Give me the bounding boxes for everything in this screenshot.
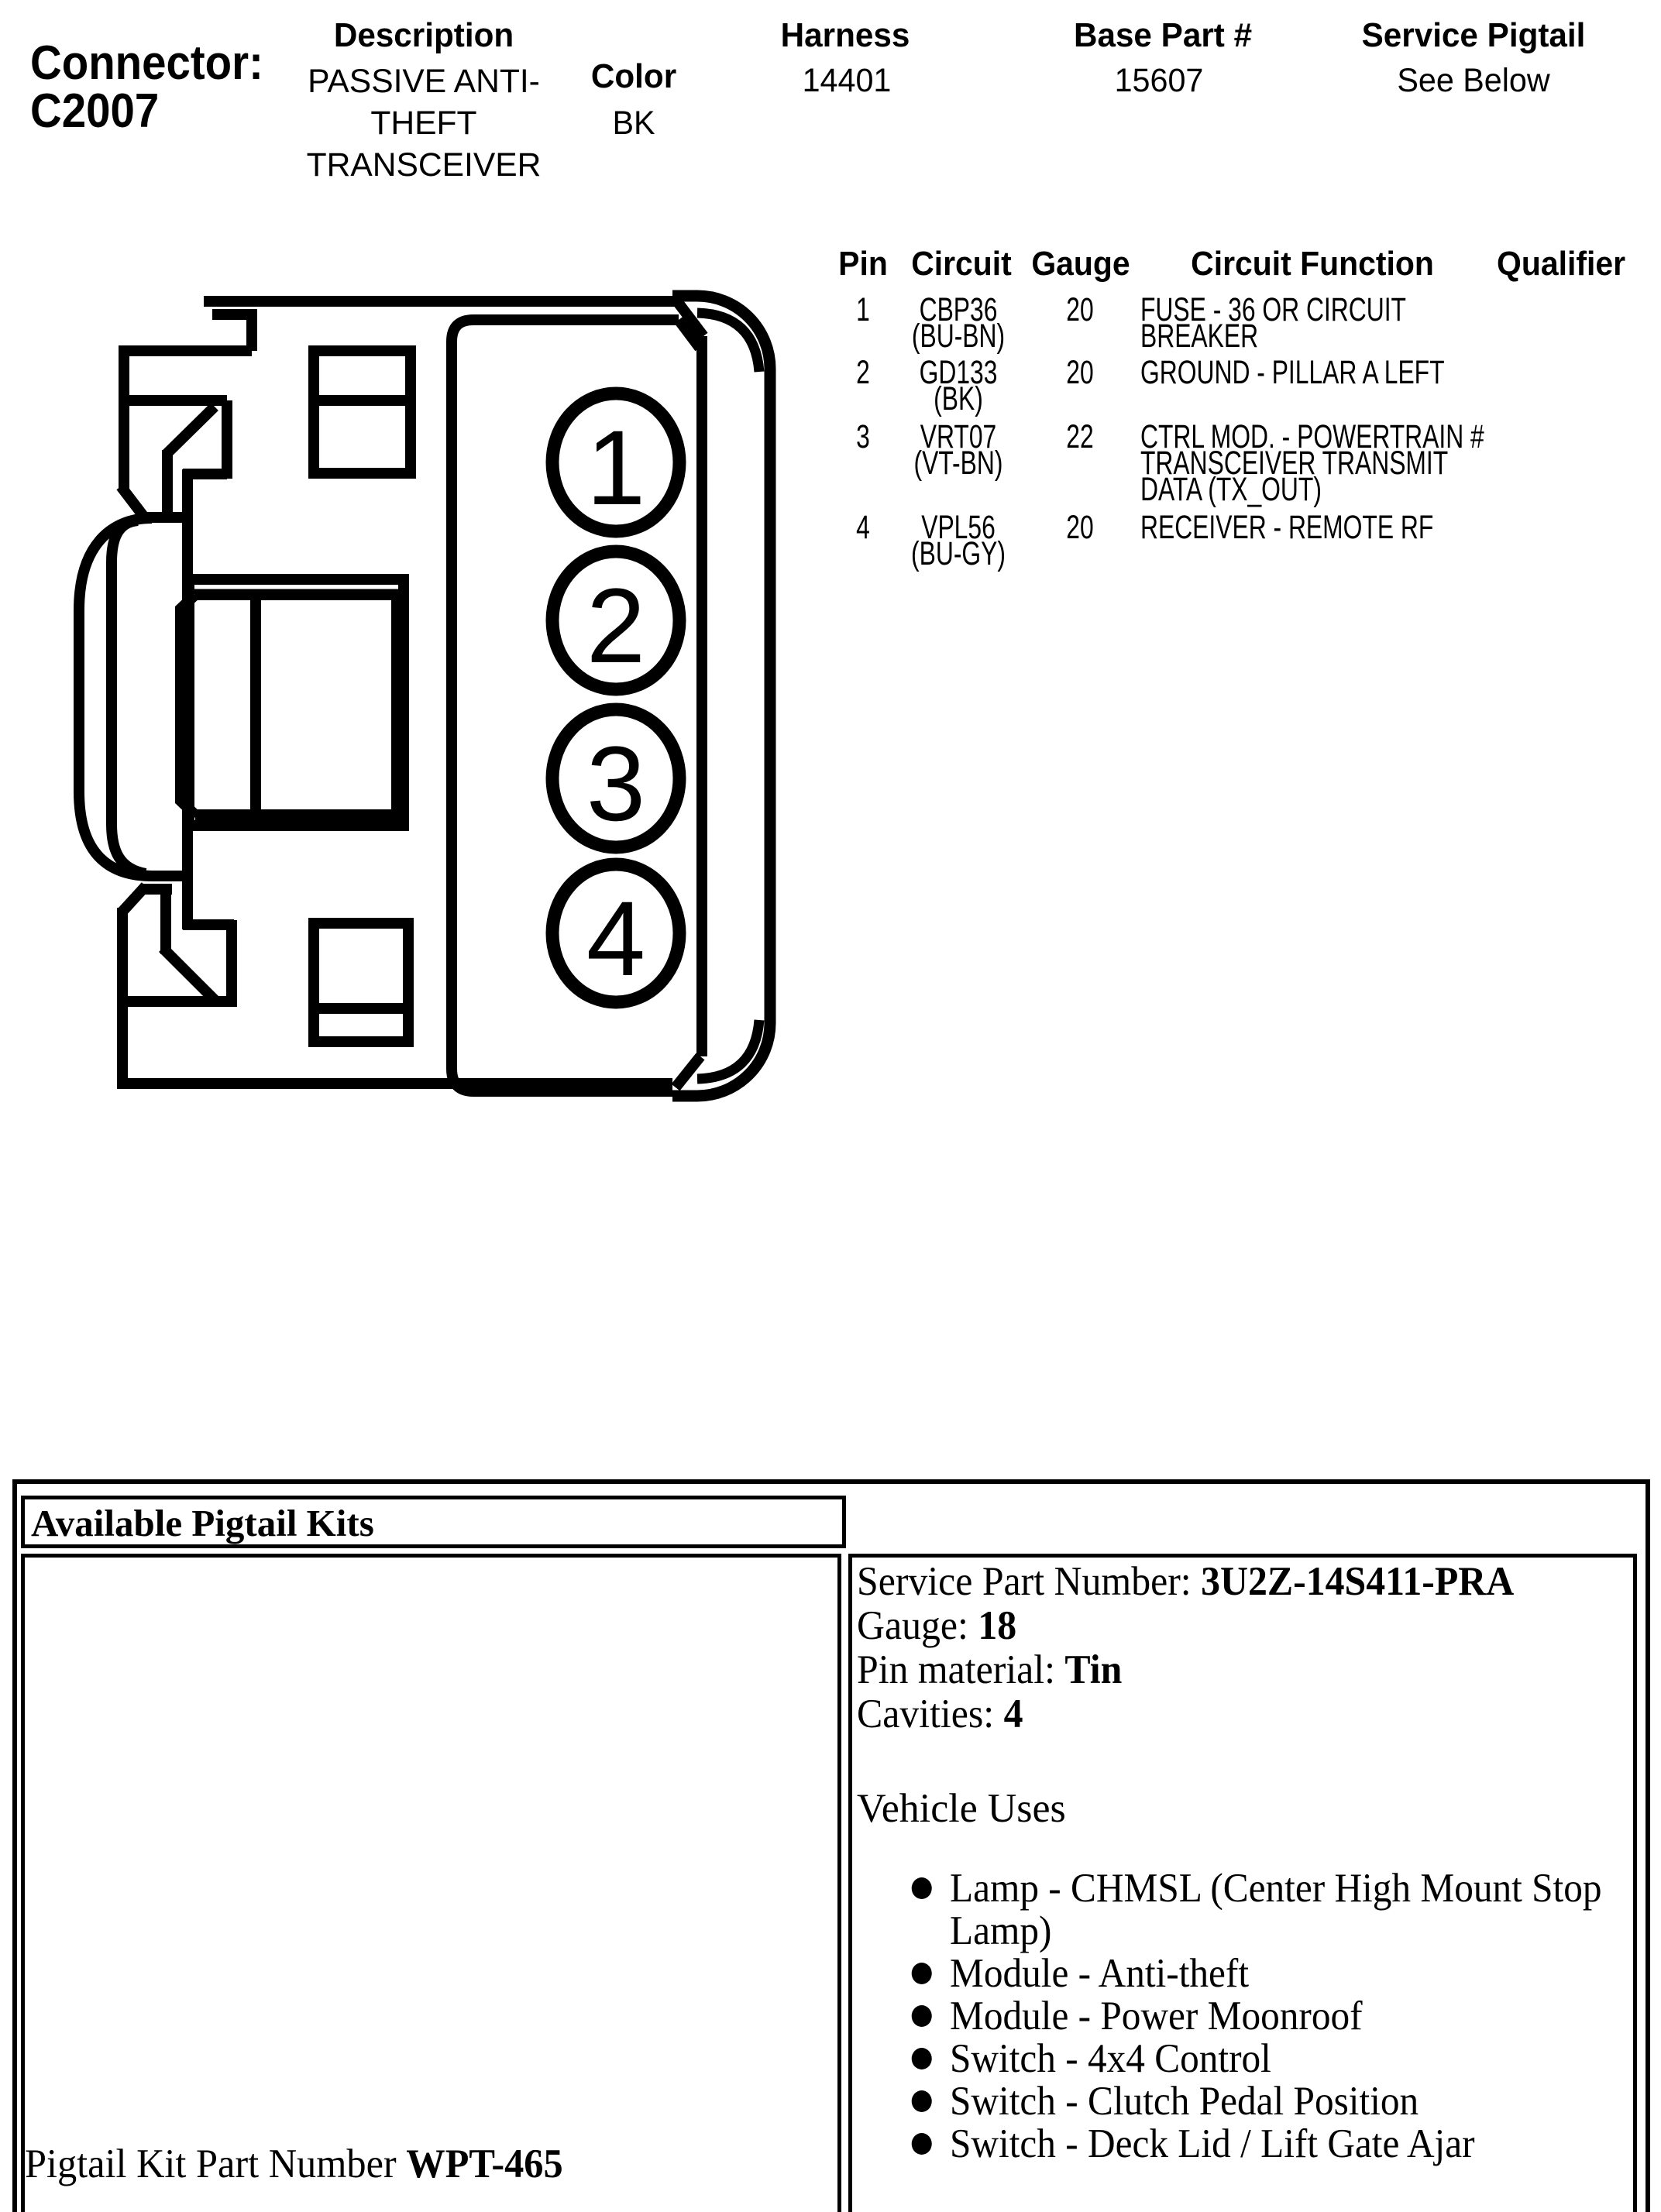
svg-text:3: 3 (586, 725, 645, 843)
svg-text:4: 4 (586, 880, 645, 998)
svg-text:2: 2 (586, 567, 645, 685)
svg-text:1: 1 (586, 409, 645, 527)
